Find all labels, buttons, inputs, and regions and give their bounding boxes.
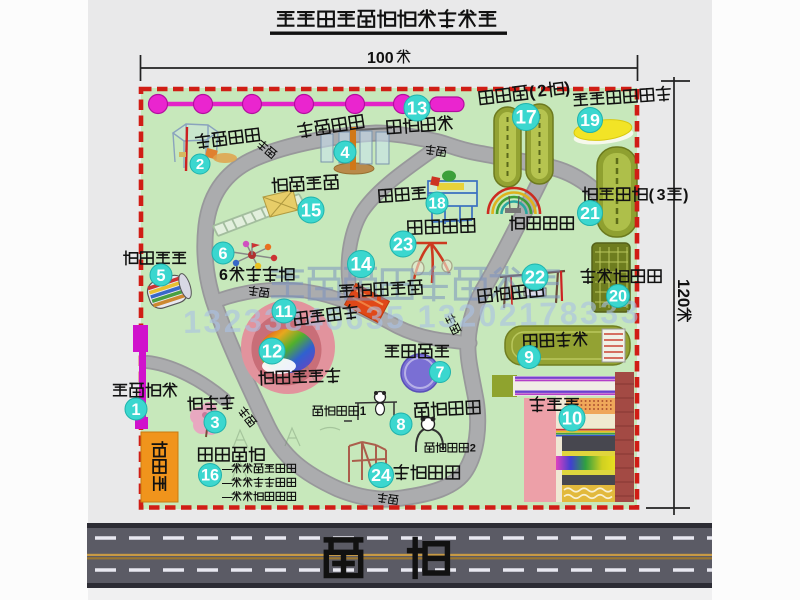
svg-text:18: 18: [428, 196, 446, 213]
svg-text:3: 3: [210, 414, 219, 432]
svg-text:2: 2: [196, 156, 204, 173]
svg-text:12: 12: [262, 341, 283, 362]
svg-text:—: —: [222, 491, 233, 503]
svg-text:4: 4: [340, 144, 350, 162]
svg-text:14: 14: [350, 255, 372, 276]
svg-text:17: 17: [515, 108, 536, 129]
svg-text:15: 15: [301, 200, 322, 221]
svg-text:—: —: [222, 477, 233, 489]
svg-text:7: 7: [436, 365, 445, 382]
svg-text:13: 13: [407, 98, 428, 119]
svg-text:1: 1: [360, 406, 367, 418]
svg-text:23: 23: [393, 234, 414, 255]
svg-text:1: 1: [131, 401, 140, 419]
svg-text:22: 22: [525, 267, 546, 288]
svg-text:9: 9: [524, 347, 534, 367]
svg-text:19: 19: [580, 110, 600, 130]
svg-text:8: 8: [396, 416, 405, 434]
svg-text:16: 16: [201, 467, 219, 485]
svg-text:2: 2: [470, 443, 476, 455]
svg-text:120: 120: [674, 279, 693, 307]
svg-text:6: 6: [219, 267, 228, 284]
svg-text:21: 21: [580, 203, 600, 223]
svg-text:6: 6: [218, 245, 227, 263]
svg-text:24: 24: [371, 465, 391, 485]
svg-text:(: (: [649, 187, 655, 204]
svg-text:100: 100: [367, 50, 394, 67]
svg-text:20: 20: [609, 288, 627, 306]
svg-text:): ): [683, 187, 688, 204]
svg-text:10: 10: [562, 408, 583, 429]
svg-text:3: 3: [657, 187, 666, 204]
svg-text:—: —: [222, 463, 233, 475]
svg-text:11: 11: [275, 302, 293, 321]
svg-text:5: 5: [156, 267, 165, 285]
